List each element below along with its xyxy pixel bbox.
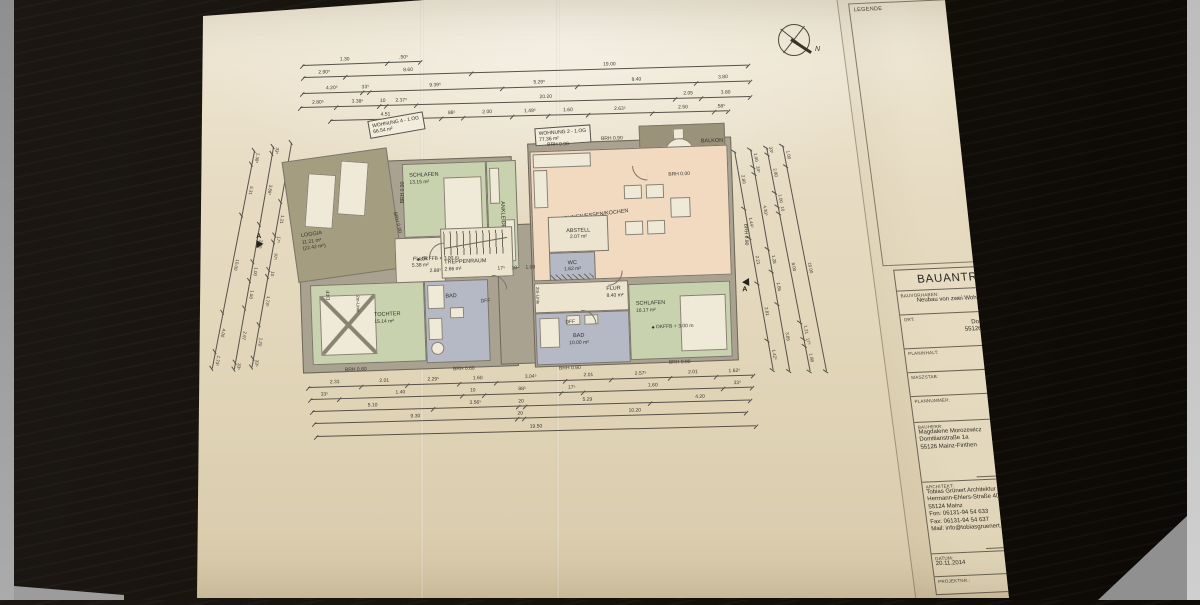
dim-value: 10 [269, 270, 275, 278]
signature-label: Unterschrift [1025, 540, 1049, 546]
section-triangle-icon [256, 240, 263, 248]
dim-value: 2.80⁵ [300, 100, 336, 106]
dim-value: 5.31 [243, 164, 257, 216]
dim-value: 2.05 [675, 91, 701, 97]
dim-segment: 2.05 [675, 90, 701, 99]
room-label: ANKLEIDE [499, 201, 506, 228]
shower [427, 285, 445, 310]
room-area2: (22.42 m²) [302, 242, 326, 251]
round-table [664, 138, 695, 169]
bed [319, 294, 377, 356]
wall-zone-right-apartment [527, 136, 739, 367]
section-marker-a: A [742, 278, 755, 293]
signature-row-2: Unterschrift [930, 536, 1053, 553]
dim-segment: 33⁵ [272, 147, 281, 155]
dim-segment: 1.00 [250, 262, 261, 282]
dim-value: 33⁵ [768, 146, 774, 154]
dim-value: 1.40 [339, 389, 462, 397]
field-architekt: ARCHITEKT: Tobias Grünert Architektur He… [922, 476, 1052, 541]
north-arrow-icon: N [774, 20, 826, 66]
dim-segment: 2.00 [253, 225, 267, 263]
dim-segment: 10 [379, 98, 386, 106]
dim-value: 4.51 [330, 111, 441, 119]
field-value: Domitianstraße 1a [919, 432, 1036, 445]
dim-segment: 1.50 [245, 280, 258, 309]
paper-crease [556, 0, 560, 600]
room-label: FLUR [412, 256, 429, 263]
field-bauherr: BAUHERR: Magdalene Morozewicz Domitianst… [914, 417, 1042, 470]
drawing-sheet: N 1.30.50⁵ 2.90⁵8.6019.00 4.20⁵33⁵9.39⁵5… [0, 0, 1200, 600]
dim-segment: 17⁵ [803, 337, 812, 345]
field-value: Neubau von zwei Wohnhäusern [901, 293, 1018, 306]
dim-value: 33⁵ [253, 358, 259, 368]
room-label: TOCHTER [374, 311, 401, 319]
field-label: PLANNUMMER: [914, 393, 1031, 403]
dim-value: 4.20 [650, 394, 750, 402]
room-wc: WC 1.62 m² [549, 251, 596, 281]
field-plannummer: PLANNUMMER: 3 [911, 391, 1036, 422]
dim-segment: 2.97 [235, 308, 253, 364]
field-label: BAUVORHABEN: [900, 288, 1017, 298]
room-label: ABSTELL [566, 227, 590, 234]
room-schlafen-w2: SCHLAFEN 16.17 m² [628, 281, 733, 361]
dim-value: 33⁵ [310, 392, 339, 398]
brh-marker: BRH 0.90 [401, 182, 406, 204]
dim-segment: .58⁵ [714, 103, 728, 111]
dim-value: 2.63⁵ [588, 106, 653, 113]
dim-segment: 17⁵ [274, 236, 283, 244]
signature-line [977, 473, 1044, 477]
title-block: BAUANTRAG BAUVORHABEN: Neubau von zwei W… [893, 264, 1060, 595]
north-circle [778, 24, 810, 56]
room-label: FLUR [606, 285, 623, 292]
dim-value: 9.39⁵ [369, 81, 502, 90]
dim-segment: 1.40 [339, 388, 462, 399]
dim-value: 1.60 [548, 108, 587, 114]
signature-label: Unterschrift [1016, 468, 1040, 474]
dff-marker: DFF [565, 320, 575, 325]
bathtub [428, 318, 443, 340]
room-area: 8.40 m² [606, 292, 623, 299]
signature-line [986, 545, 1053, 549]
dim-value: 2.13⁵ [283, 143, 298, 203]
dim-segment: 5.29⁵ [502, 78, 577, 88]
dim-segment: 8.60 [345, 65, 471, 77]
dim-value: 1.00 [752, 148, 760, 166]
field-value: 55126 Mainz-Finthen [920, 439, 1037, 452]
room-flur-w4: FLUR 5.38 m² [394, 237, 446, 289]
photo-edge-right [1187, 0, 1200, 600]
dim-value: 33⁵ [274, 147, 280, 155]
dim-segment: 1.73⁵ [259, 276, 275, 326]
field-ort: ORT: Domitianstraße 1a 55126 Mainz-Finth… [900, 309, 1026, 348]
dim-value: 17⁵ [275, 236, 281, 244]
dim-value: .50⁵ [387, 55, 420, 61]
level-flag-icon: ◆ [652, 324, 656, 329]
dim-segment: 88⁵ [484, 385, 561, 395]
sink [584, 314, 598, 324]
dim-value: 2.01 [565, 373, 611, 379]
dim-value: 20 [517, 412, 524, 417]
dim-segment: 1.30 [302, 55, 387, 66]
dim-segment: .50⁵ [387, 54, 420, 63]
room-ankleide: ANKLEIDE [486, 160, 520, 269]
dim-segment: 4.51 [330, 110, 441, 121]
chair [652, 148, 663, 159]
dim-value: 5.29⁵ [502, 79, 577, 86]
room-treppenraum: TREPPENRAUM 2.66 m² [440, 226, 514, 278]
dim-value: 2.21 [751, 237, 763, 283]
brh-marker: BRH 0.60 [345, 367, 367, 373]
dim-segment: 33⁵ [766, 146, 775, 154]
dim-value: 1.28 [770, 248, 778, 271]
dim-value: 1.60 [459, 376, 496, 382]
dim-segment: 1.62⁵ [716, 368, 753, 377]
dim-segment: 10 [778, 205, 787, 213]
legend-box: LEGENDE [848, 0, 1012, 266]
dim-value: 1.21 [802, 321, 810, 338]
door-arc [429, 243, 445, 259]
dim-value: 5.29 [525, 396, 651, 404]
dim-segment: 19.00 [471, 58, 748, 74]
dim-segment: 2.01 [565, 372, 611, 381]
washbasin [431, 342, 444, 355]
dim-value: 4.20⁵ [302, 85, 362, 92]
dim-segment: 10 [462, 387, 484, 396]
field-value: Fon: 06131-94 54 633 [929, 506, 1046, 519]
dim-chain-bottom-4: 9.302010.20 [314, 405, 746, 424]
dim-segment: 33⁵ [310, 391, 339, 400]
dim-segment: 20 [517, 411, 524, 419]
brh-marker: BRH 0.00 [668, 172, 690, 178]
dim-value: 5.10 [312, 402, 433, 410]
room-area2: (10.64 m²) [700, 150, 723, 157]
dim-segment: 19.50 [316, 418, 756, 437]
dim-segment: 5.31 [242, 164, 260, 217]
lounger [305, 173, 337, 229]
dim-value: 1.62⁵ [716, 369, 753, 375]
photo-floor-corner-left [14, 580, 124, 600]
closet [505, 219, 516, 261]
room-area: 2.07 m² [566, 234, 590, 241]
north-label: N [815, 46, 820, 53]
titleblock-title: BAUANTRAG [894, 265, 1019, 290]
dim-value: 2.01 [670, 370, 716, 376]
apartment-name: WOHNUNG 4 - 1.OG [372, 115, 420, 129]
room-label: SCHLAFEN [409, 172, 439, 180]
field-value: 1:100 [912, 375, 1029, 388]
dim-segment: 2.29⁵ [407, 376, 460, 385]
dim-segment: 3.38⁵ [336, 98, 379, 107]
section-triangle-icon [742, 278, 749, 286]
dim-chain-right-4: 1.0010.00 [782, 144, 834, 371]
dim-segment: 4.00 [215, 313, 230, 353]
dim-value: 1.44⁵ [746, 208, 756, 238]
dim-segment: 1.85 [772, 270, 786, 304]
field-value: Fax: 06131-94 54 637 [930, 514, 1047, 527]
dim-segment: 3.04⁵ [496, 373, 566, 383]
chair [674, 168, 685, 179]
legend-title: LEGENDE [849, 0, 978, 13]
dim-segment: 1.38⁵ [252, 150, 262, 165]
dim-segment: 3.88⁵ [259, 154, 279, 227]
dim-segment: 2.37⁵ [386, 97, 417, 106]
wall-zone-left-apartment [296, 156, 519, 373]
dim-segment: 1.60 [583, 380, 723, 392]
photo-floor-corner-right [1098, 516, 1187, 600]
field-label: ORT: [903, 312, 1020, 322]
dim-value: 1.42⁵ [770, 340, 780, 370]
field-label: BAUHERR: [918, 419, 1035, 429]
room-area: 33.78 m² [559, 215, 630, 230]
field-label: ARCHITEKT: [925, 479, 1042, 489]
room-loggia: LOGGIA 11.21 m² (22.42 m²) [282, 147, 404, 283]
dim-segment: 2.63⁵ [588, 105, 653, 115]
dim-value: 10.00 [225, 216, 248, 314]
dim-value: 10 [379, 99, 386, 104]
field-bauvorhaben: BAUVORHABEN: Neubau von zwei Wohnhäusern [897, 285, 1022, 314]
room-area: 16.17 m² [636, 306, 666, 313]
room-label: BALKON [700, 138, 723, 145]
room-area: 15.14 m² [374, 318, 401, 325]
dim-value: 8.60 [345, 66, 471, 75]
dim-value: 10 [780, 205, 786, 213]
dim-segment: 10 [268, 269, 277, 277]
dim-value: 33⁵ [362, 85, 369, 90]
field-value: 3 [915, 398, 1032, 411]
dim-chain-top-1: 1.30.50⁵ [302, 54, 420, 66]
field-gez: GEZ.: SH [1005, 549, 1056, 573]
dim-chain-bottom-1: 2.332.012.29⁵1.603.04⁵2.012.57⁵2.011.62⁵ [308, 368, 753, 388]
dim-segment: 1.00 [750, 148, 761, 167]
dim-segment: 2.01 [670, 369, 716, 378]
dim-segment: 5.29 [525, 395, 651, 406]
door-arc [581, 309, 597, 325]
dim-segment: 97⁵ [269, 242, 282, 270]
dim-segment: 10.20 [524, 405, 746, 419]
dim-value: 3.88⁵ [261, 154, 278, 226]
field-projektnr: PROJEKTNR.: [934, 571, 1058, 594]
dim-chain-bottom-3: 5.103.56⁵205.294.20 [312, 393, 750, 412]
dff-marker: DFF [481, 299, 491, 304]
dim-value: 1.20 [255, 325, 265, 359]
dim-value: 2.57⁵ [611, 371, 670, 378]
dim-segment: 2.80 [767, 153, 782, 193]
dim-segment: 8.00 [779, 212, 808, 323]
dim-value: 1.88 [807, 344, 816, 371]
bed [680, 294, 728, 352]
dim-chain-right-3: 33⁵2.801.00108.001.2117⁵1.88 [766, 146, 817, 371]
dim-value: 2.29⁵ [407, 377, 459, 383]
dff-marker: DFF [327, 290, 332, 300]
dim-value: 10.00 [788, 165, 832, 371]
room-area: 5.38 m² [412, 262, 429, 269]
dim-value: 97⁵ [271, 243, 280, 271]
dim-value: 1.73⁵ [261, 277, 274, 326]
apartment-label-w2: WOHNUNG 2 - 1.OG 77.36 m² [534, 124, 591, 145]
dim-value: 1.49⁵ [512, 109, 549, 115]
dim-value: 19.50 [316, 419, 756, 435]
dim-chain-top-5: 4.5188⁵2.001.49⁵1.602.63⁵2.50.58⁵ [330, 103, 728, 121]
sofa [624, 185, 642, 200]
room-label: WC [564, 260, 581, 267]
dim-value: 1.50 [247, 280, 256, 308]
brh-marker: BRH 0.90 [669, 360, 691, 366]
kitchen-counter [533, 152, 591, 168]
field-value: SH [1010, 556, 1052, 565]
field-datum: DATUM: 20.11.2014 [932, 551, 1008, 576]
dim-value: 9.30 [314, 412, 517, 422]
okffb-marker: ◆ OKFFB + 3.00 m [652, 324, 694, 330]
dim-chain-bottom-5: 19.50 [316, 418, 756, 437]
dim-value: 4.30⁵ [756, 173, 774, 249]
dim-segment: 20.20 [416, 91, 675, 105]
sofa [646, 184, 664, 199]
dim-value: 88⁵ [441, 111, 463, 117]
dim-value: 33⁵ [723, 381, 752, 387]
dim-segment: 2.90⁵ [303, 69, 346, 78]
field-label: PROJEKTNR.: [938, 574, 1055, 584]
dim-value: 1.00 [784, 144, 792, 165]
dim-segment: 10.00 [786, 165, 834, 372]
dim-chain-left-1: 1.38⁵5.3110.004.001.73⁵ [212, 150, 262, 369]
brh-marker: BRH 0.00 [392, 212, 402, 234]
dim-value: 3.85 [779, 303, 795, 371]
title-sheet: LEGENDE BAUANTRAG BAUVORHABEN: Neubau vo… [836, 0, 1102, 605]
inner-dim: 17⁵ [497, 266, 505, 271]
inner-dim: 10 [511, 266, 517, 271]
dim-value: 2.80 [736, 150, 751, 208]
chair [695, 146, 706, 157]
dim-segment: 1.21 [800, 321, 811, 339]
signature-scribble [999, 437, 1059, 548]
room-label: BAD [569, 333, 589, 340]
dim-value: 4.00 [217, 313, 229, 353]
dim-value: 1.73⁵ [214, 352, 222, 370]
dim-value: 2.81 [759, 282, 774, 340]
dim-value: 20 [518, 399, 525, 404]
dim-segment: 1.42⁵ [768, 340, 781, 370]
dim-segment: 1.73⁵ [212, 352, 223, 370]
dim-segment: 33⁵ [362, 84, 369, 92]
dim-value: 8.40 [577, 76, 696, 84]
field-label: PLANINHALT: [908, 346, 1025, 356]
dim-chain-right-1: 2.801.44⁵2.212.811.42⁵ [734, 150, 780, 370]
room-wohnen-essen-kochen: WOHNEN/ESSEN/KOCHEN 33.78 m² [529, 145, 731, 282]
dim-value: 2.90⁵ [303, 70, 345, 76]
brh-marker: BRH 0.60 [453, 367, 475, 373]
dim-value: 2.50 [652, 105, 714, 111]
sofa [647, 220, 665, 235]
dim-segment: 17⁵ [561, 384, 583, 393]
dim-value: 33⁵ [236, 363, 242, 371]
field-label: MASZSTAB: [911, 370, 1028, 380]
room-area: 5.32 m² [700, 144, 723, 151]
dim-segment: 9.30 [314, 411, 517, 424]
dim-value: 2.33 [308, 380, 361, 386]
brh-marker: BRH 0.90 [559, 366, 581, 372]
field-value: Grundriss 1.OG [908, 351, 1025, 364]
dim-value: 17⁵ [561, 385, 583, 391]
dim-chain-top-2: 2.90⁵8.6019.00 [303, 58, 748, 78]
dim-segment: 1.20 [253, 325, 267, 360]
okffb-marker: ◆ OKFFB + 3.00 m [417, 256, 459, 262]
field-value: Tobias Grünert Architektur [926, 484, 1043, 497]
room-area: 2.66 m² [444, 265, 486, 272]
wall-zone-stairwell [496, 223, 551, 365]
signature-row: Unterschrift [920, 464, 1043, 481]
dim-segment: 2.57⁵ [611, 370, 670, 380]
dim-value: 1.30 [302, 56, 387, 64]
room-balkon: BALKON 5.32 m² (10.64 m²) [639, 123, 727, 184]
table [670, 197, 691, 218]
dim-segment: 20 [518, 398, 525, 406]
dim-segment: 3.80 [701, 89, 750, 98]
field-datum-gez: DATUM: 20.11.2014 GEZ.: SH [931, 548, 1056, 576]
field-value: Magdalene Morozewicz [918, 424, 1035, 437]
room-label: TREPPENRAUM [444, 258, 486, 266]
dim-chain-left-3: 2.13⁵1.2117⁵97⁵101.73⁵1.2033⁵ [252, 143, 299, 369]
dim-segment: 33⁵ [252, 358, 261, 369]
room-tochter: TOCHTER 15.14 m² [310, 281, 427, 365]
lounger [337, 160, 369, 216]
dim-segment: 10.00 [223, 216, 250, 315]
dim-value: 2.01 [361, 378, 407, 384]
sofa [625, 221, 643, 236]
paper-crease [420, 0, 424, 600]
dim-value: 1.60 [583, 381, 723, 390]
room-flur-w2: FLUR 8.40 m² [534, 280, 629, 313]
dim-value: 1.21 [277, 202, 287, 236]
dim-value: 10 [462, 388, 484, 394]
dim-value: 2.00 [255, 225, 266, 263]
dim-value: 1.85 [774, 270, 784, 303]
2m-line-marker: 2m-Linie [535, 287, 540, 304]
dim-segment: 2.33 [308, 379, 361, 388]
section-marker-a: A [256, 233, 264, 248]
room-bad-w4: BAD [424, 279, 491, 363]
dim-chain-bottom-2: 33⁵1.401088⁵17⁵1.6033⁵ [310, 380, 752, 400]
dim-value: 1.00 [777, 191, 784, 206]
room-label: SCHLAFEN [636, 300, 666, 308]
dim-segment: 1.49⁵ [512, 108, 549, 117]
dim-segment: 8.40 [577, 75, 696, 86]
dim-chain-top-3: 4.20⁵33⁵9.39⁵5.29⁵8.403.80 [302, 73, 750, 94]
bathtub [539, 318, 560, 349]
sink [566, 315, 580, 325]
dim-segment: 2.50 [652, 104, 714, 113]
dim-segment: 9.39⁵ [369, 80, 502, 92]
dim-value: 88⁵ [484, 386, 561, 393]
photo-edge-left [0, 0, 14, 600]
brh-marker: BRH 0.90 [742, 224, 748, 246]
dim-chain-right-2: 1.0033⁵4.30⁵1.281.853.85 [750, 148, 797, 371]
2m-line-marker: 2m-Linie [355, 295, 360, 312]
dim-segment: 88⁵ [441, 110, 463, 119]
field-value: Hermann-Ehlers-Straße 40 [927, 491, 1044, 504]
room-area: 11.21 m² [302, 236, 326, 245]
dim-value: 3.56⁵ [433, 400, 518, 407]
dim-value: .58⁵ [714, 104, 728, 109]
room-area: 10.00 m² [569, 339, 589, 346]
apartment-name: WOHNUNG 2 - 1.OG [539, 127, 587, 137]
dim-segment: 2.01 [361, 377, 407, 386]
floor-plan: LOGGIA 11.21 m² (22.42 m²) BALKON 5.32 m… [279, 120, 758, 388]
dim-segment: 1.00 [775, 191, 786, 206]
field-value: 20.11.2014 [935, 558, 1003, 568]
dim-segment: 2.80⁵ [300, 99, 336, 108]
dim-segment: 1.60 [459, 375, 496, 384]
